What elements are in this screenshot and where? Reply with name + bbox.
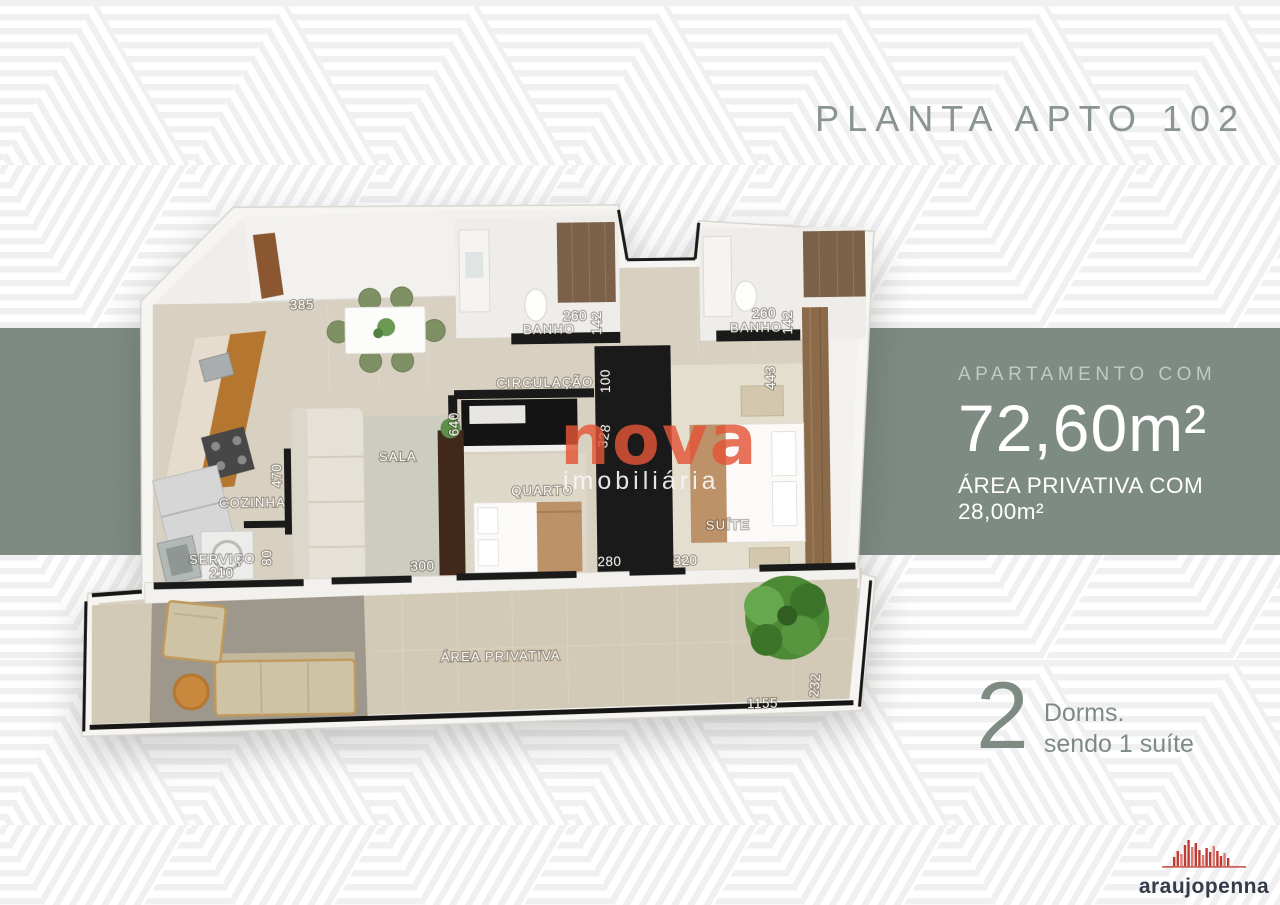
dim-142-banho1: 142 [589,311,604,335]
tv-cabinet [438,430,466,575]
dim-260-banho2: 260 [752,306,776,321]
watermark-tagline: imobiliária [563,467,720,495]
dim-320: 320 [673,553,697,568]
sala [291,406,465,587]
coffee-table [174,675,208,709]
floorplan: BANHO BANHO CIRCULAÇÃO COZINHA SALA QUAR… [74,198,880,736]
dim-470: 470 [269,464,284,488]
dim-640: 640 [446,412,461,436]
dim-80: 80 [259,550,274,566]
room-label-cozinha: COZINHA [219,495,286,511]
sofa [291,407,365,586]
room-label-suite: SUÍTE [706,517,751,533]
dim-443: 443 [763,366,778,390]
room-label-area-privativa: ÁREA PRIVATIVA [441,648,561,665]
dim-385: 385 [290,297,314,312]
brand-name: araujopenna [1136,875,1272,899]
skyline-icon [1159,837,1249,869]
room-label-banho2: BANHO [730,320,782,336]
outdoor-sofa [215,652,356,716]
room-label-circulacao: CIRCULAÇÃO [496,374,593,390]
dim-210: 210 [209,565,233,580]
wall-corner-left [152,217,251,304]
outdoor-armchair [163,601,227,663]
notch-wall-edges [619,209,700,260]
dim-142-banho2: 142 [780,310,795,334]
room-label-sala: SALA [379,449,417,465]
dim-232: 232 [806,673,823,698]
dim-300: 300 [410,559,434,574]
floorplan-render: BANHO BANHO CIRCULAÇÃO COZINHA SALA QUAR… [0,0,1280,905]
dim-1155: 1155 [747,696,778,711]
dim-100: 100 [598,369,613,393]
dim-260-banho1: 260 [563,308,587,323]
dim-280: 280 [597,554,621,569]
watermark: nova imobiliária [560,399,759,495]
room-label-banho1: BANHO [523,322,575,338]
brand-logo: araujopenna [1136,837,1272,899]
suite-headboard-wall [802,307,832,565]
